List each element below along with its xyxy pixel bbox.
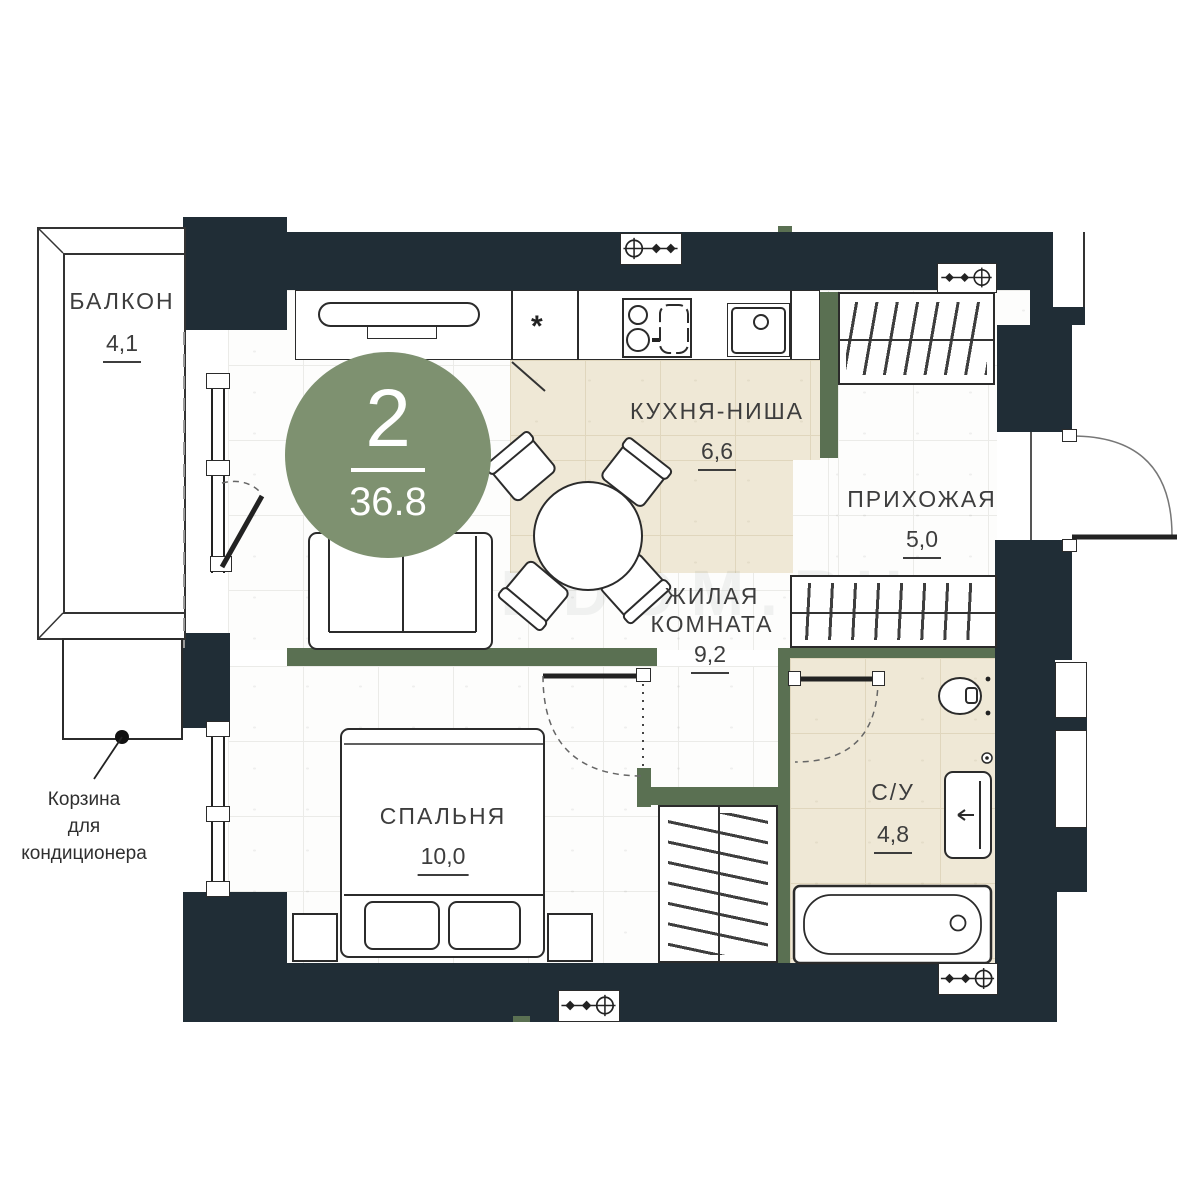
- ac-basket-annotation-line2: для: [21, 813, 147, 840]
- counter-divider-2: [577, 290, 579, 360]
- wall-right-bath: [995, 660, 1055, 892]
- door-hinge: [872, 671, 885, 686]
- closet-bedroom: [658, 805, 778, 963]
- badge-rooms-count: 2: [285, 378, 491, 460]
- door-hinge: [788, 671, 801, 686]
- badge-total-area: 36.8: [285, 482, 491, 522]
- washbasin-vanity: [944, 771, 992, 859]
- wall-left-pier: [183, 633, 230, 728]
- entry-threshold-line: [1030, 432, 1032, 540]
- room-label-bathroom: С/У: [871, 779, 915, 806]
- stove-icon: [622, 298, 692, 358]
- room-area-hallway: 5,0: [903, 526, 941, 559]
- door-hinge: [1062, 429, 1077, 442]
- balcony-door-pivot: [210, 556, 232, 572]
- toilet-icon: [936, 674, 992, 718]
- balcony-window-sill-2: [206, 460, 230, 476]
- right-wall-niche-1: [1055, 662, 1087, 718]
- room-label-bedroom: СПАЛЬНЯ: [380, 803, 506, 830]
- sink-icon: [727, 303, 790, 357]
- wall-bottom: [183, 963, 1057, 1022]
- wall-top-left-block: [183, 217, 287, 330]
- room-area-bedroom: 10,0: [418, 843, 469, 876]
- ac-basket-annotation-line3: кондиционера: [21, 840, 147, 867]
- door-hinge: [636, 668, 651, 682]
- wardrobe-hallway-south: [790, 575, 997, 648]
- bedroom-window-sill-1: [206, 721, 230, 737]
- kitchen-hood: [318, 302, 480, 327]
- ac-basket: [62, 638, 183, 740]
- dining-table: [533, 481, 643, 591]
- ac-basket-annotation: Корзина для кондиционера: [21, 786, 147, 867]
- room-area-kitchen: 6,6: [698, 438, 736, 471]
- wall-right-bath-strip1: [1055, 717, 1087, 730]
- apartment-badge: 2 36.8: [285, 352, 491, 558]
- room-label-balcony: БАЛКОН: [69, 288, 174, 315]
- nightstand-right: [547, 913, 593, 962]
- ac-basket-annotation-line1: Корзина: [21, 786, 147, 813]
- room-area-bathroom: 4,8: [874, 821, 912, 854]
- wall-right-mid: [995, 540, 1072, 660]
- bathtub-icon: [793, 885, 993, 965]
- vent-shaft-top: [620, 233, 682, 265]
- neighbor-wall-stub-top: [778, 226, 792, 232]
- room-label-living-1: ЖИЛАЯ: [665, 583, 760, 610]
- wardrobe-rod: [840, 339, 993, 341]
- door-hinge: [1062, 539, 1077, 552]
- room-area-balcony: 4,1: [103, 330, 141, 363]
- wardrobe-rod: [792, 612, 995, 614]
- bedroom-window-sill-2: [206, 806, 230, 822]
- room-label-kitchen: КУХНЯ-НИША: [630, 398, 804, 425]
- badge-divider: [351, 468, 425, 472]
- wall-bottom-left-block: [183, 892, 287, 1022]
- washer-tap-icon: [980, 751, 994, 765]
- room-area-living: 9,2: [691, 641, 729, 674]
- room-label-hallway: ПРИХОЖАЯ: [847, 486, 997, 513]
- room-label-living-2: КОМНАТА: [651, 611, 774, 638]
- fridge-star-icon: *: [531, 310, 543, 344]
- bedroom-window-sill-3: [206, 881, 230, 897]
- nightstand-left: [292, 913, 338, 962]
- vent-shaft-bottom: [558, 990, 620, 1022]
- wall-right-top-step: [1053, 307, 1085, 325]
- wall-right-bath-strip2: [1055, 828, 1087, 892]
- entry-recess-floor: [997, 432, 1030, 540]
- balcony-window-sill-1: [206, 373, 230, 389]
- vent-shaft-top-right: [937, 263, 997, 293]
- counter-divider-1: [511, 290, 513, 360]
- neighbor-wall-stub-bottom: [513, 1016, 530, 1022]
- wardrobe-hallway-north: [838, 292, 995, 385]
- wall-right-upper: [997, 325, 1072, 432]
- right-wall-slot: [1053, 232, 1085, 307]
- kitchen-hood-base: [367, 326, 437, 339]
- vent-shaft-bottom-right: [938, 963, 998, 995]
- partition-bathroom-west: [778, 648, 790, 963]
- closet-rod: [718, 807, 720, 961]
- partition-kitchen-hallway: [820, 292, 838, 458]
- wall-right-top: [1030, 232, 1053, 325]
- right-wall-niche-2: [1055, 730, 1087, 828]
- partition-closet-top: [643, 787, 778, 805]
- floor-plan: SIBDOM.RU *: [0, 0, 1200, 1200]
